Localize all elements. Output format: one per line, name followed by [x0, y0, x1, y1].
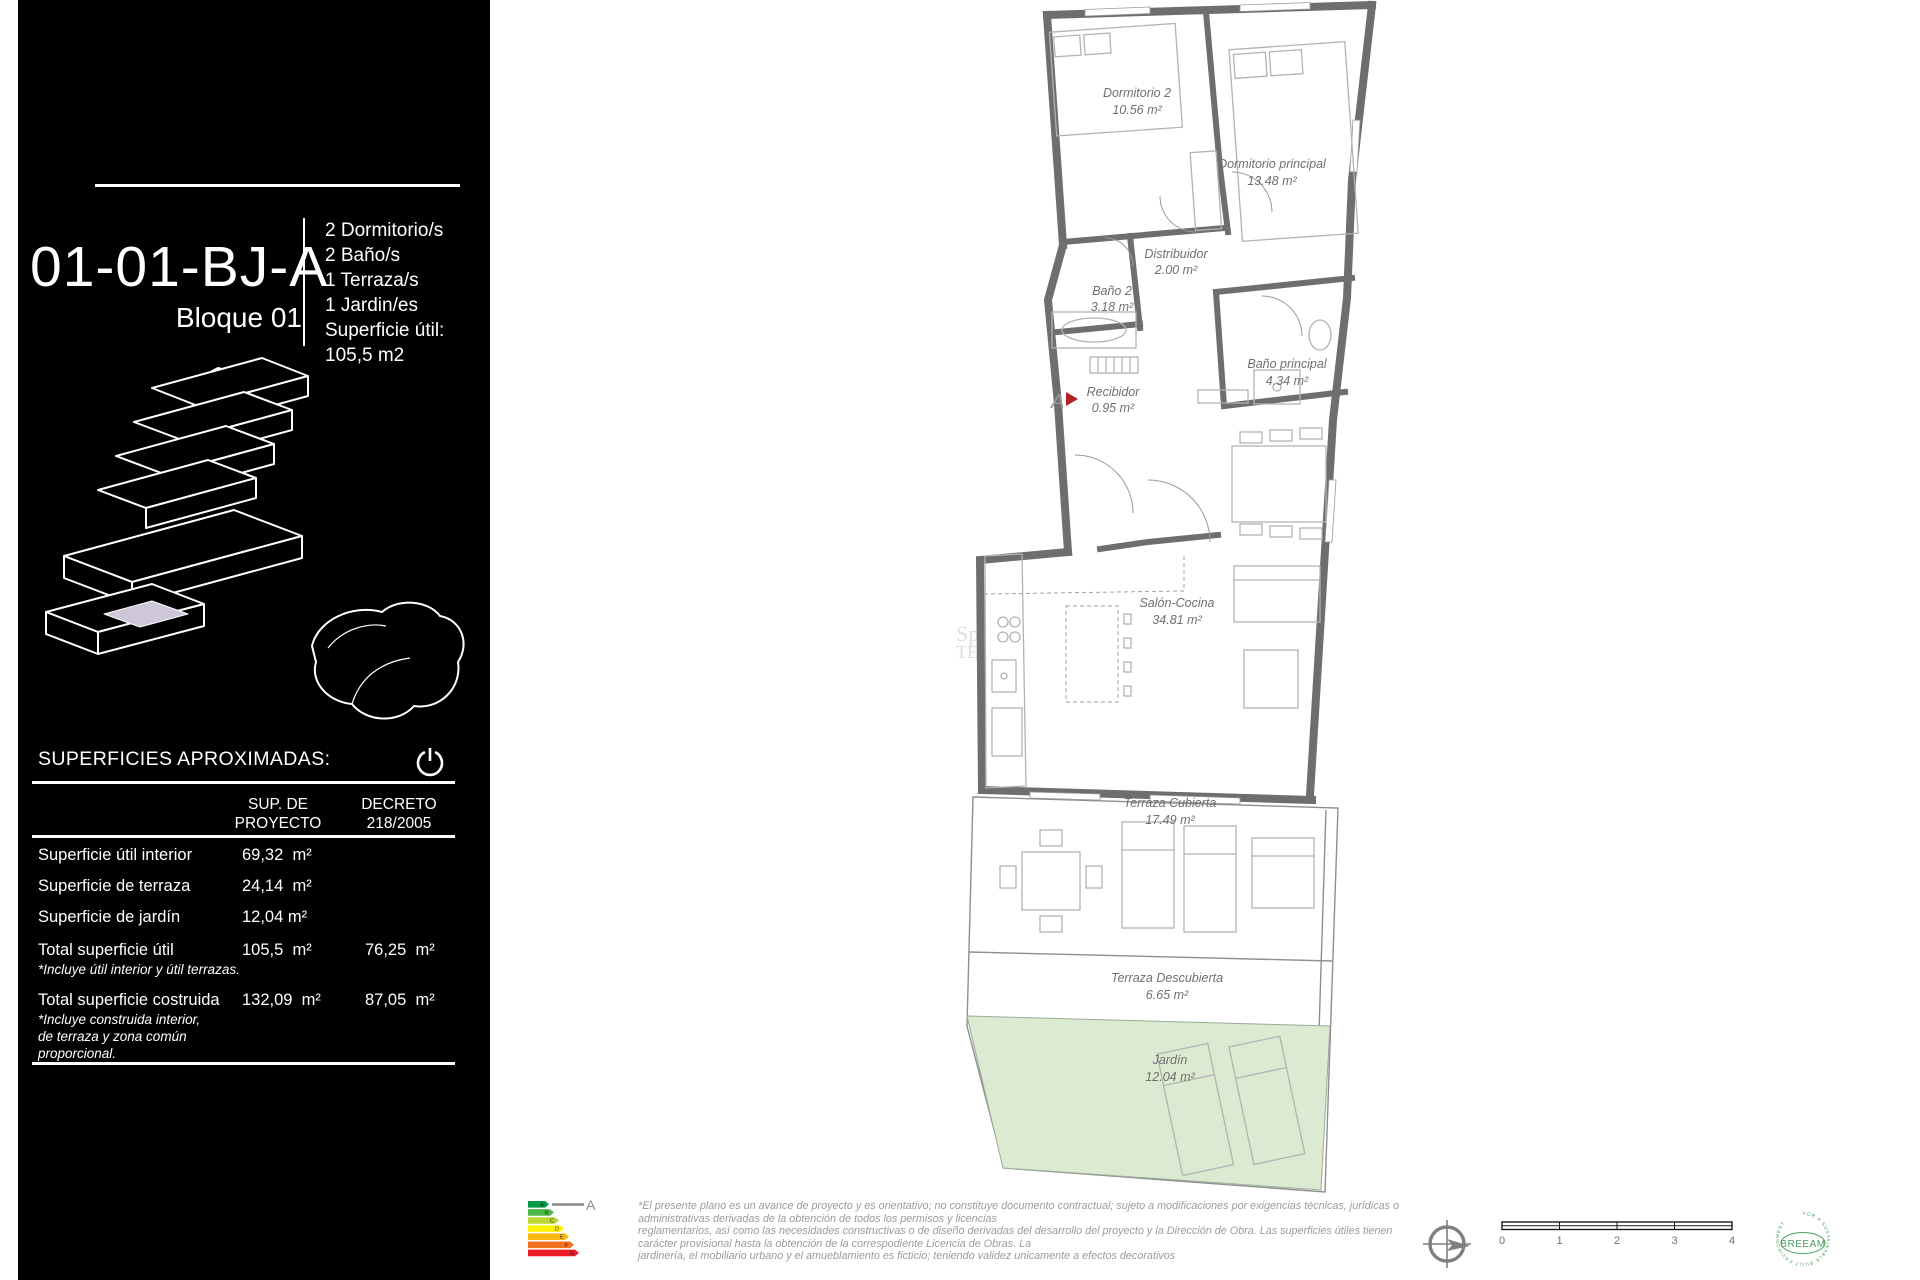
energy-rating-icon: A B C D E F G A [528, 1197, 596, 1257]
room-area: 3.18 m² [1091, 300, 1134, 314]
svg-text:3: 3 [1671, 1235, 1677, 1247]
svg-text:C: C [550, 1219, 554, 1225]
scale-bar: 0 1 2 3 4 [1499, 1222, 1735, 1247]
breeam-logo: FOR A SUSTAINABLE BUILT ENVIRONMENT BREE… [1775, 1211, 1831, 1267]
room-area: 12.04 m² [1145, 1070, 1195, 1084]
room-area: 13.48 m² [1247, 174, 1297, 188]
apartment-interior [980, 5, 1372, 795]
section-marker-letter: A [1050, 391, 1064, 413]
svg-text:A: A [540, 1202, 544, 1208]
room-name: Recibidor [1087, 385, 1141, 399]
room-area: 0.95 m² [1092, 401, 1135, 415]
room-name: Dormitorio 2 [1103, 86, 1171, 100]
svg-text:0: 0 [1499, 1235, 1505, 1247]
room-name: Salón-Cocina [1139, 596, 1214, 610]
room-name: Terraza Cubierta [1124, 796, 1217, 810]
breeam-label: BREEAM [1780, 1239, 1825, 1250]
compass-icon [1423, 1220, 1471, 1268]
svg-text:2: 2 [1614, 1235, 1620, 1247]
svg-text:B: B [545, 1210, 549, 1216]
room-name: Jardín [1152, 1053, 1188, 1067]
svg-text:D: D [555, 1227, 559, 1233]
disclaimer: *El presente plano es un avance de proye… [638, 1200, 1413, 1263]
room-area: 2.00 m² [1154, 263, 1198, 277]
room-area: 4.34 m² [1266, 374, 1309, 388]
energy-rating-letter: A [586, 1197, 596, 1213]
room-name: Baño 2 [1092, 284, 1132, 298]
room-area: 6.65 m² [1146, 988, 1189, 1002]
room-area: 34.81 m² [1152, 613, 1202, 627]
room-name: Terraza Descubierta [1111, 971, 1223, 985]
floor-plan-drawing: A Dormitorio 2 10.56 m² Dormitorio princ… [0, 0, 1920, 1280]
garden-area [967, 1016, 1330, 1190]
svg-text:G: G [570, 1251, 574, 1257]
svg-text:4: 4 [1729, 1235, 1735, 1247]
svg-text:E: E [560, 1235, 564, 1241]
room-name: Baño principal [1247, 357, 1327, 371]
room-name: Dormitorio principal [1218, 157, 1327, 171]
room-area: 10.56 m² [1112, 103, 1162, 117]
room-area: 17.49 m² [1145, 813, 1195, 827]
floor-plan-sheet: 01-01-BJ-A Bloque 01 2 Dormitorio/s 2 Ba… [0, 0, 1920, 1280]
room-name: Distribuidor [1144, 247, 1208, 261]
svg-text:1: 1 [1556, 1235, 1562, 1247]
